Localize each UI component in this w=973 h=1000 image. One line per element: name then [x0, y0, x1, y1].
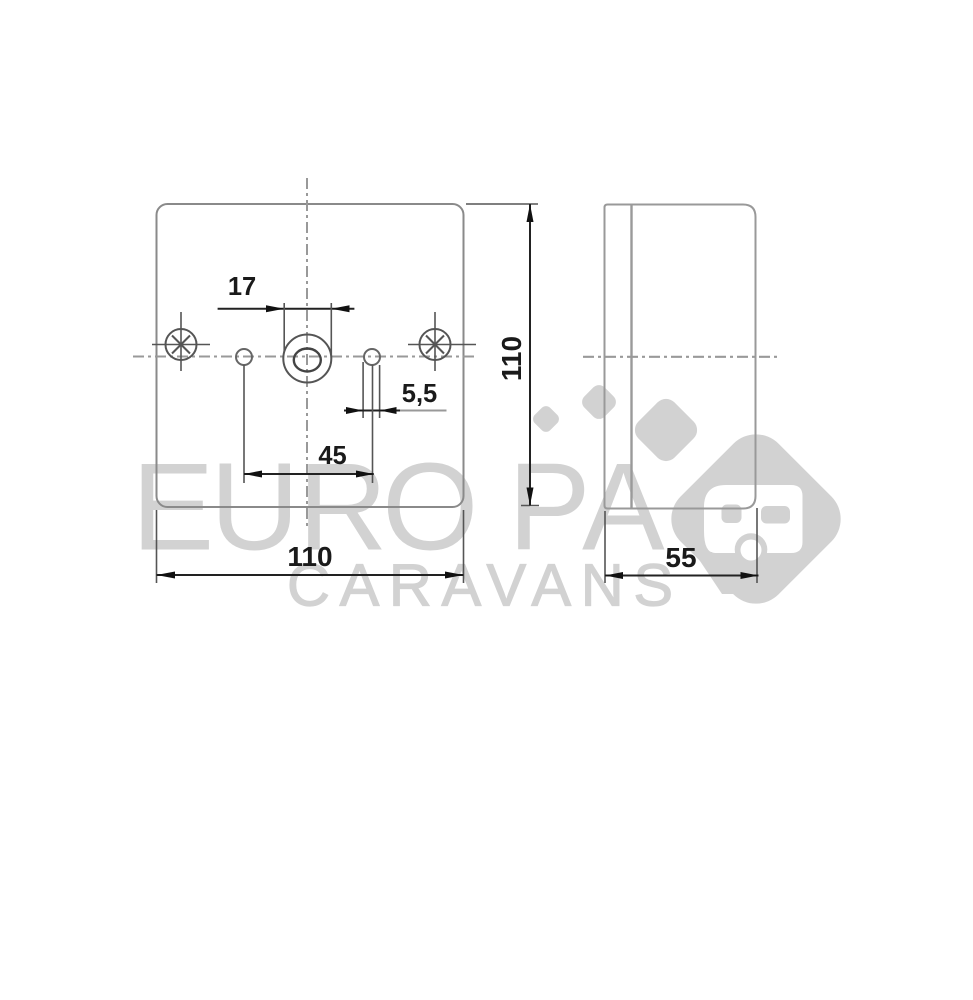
- svg-text:55: 55: [665, 542, 696, 573]
- svg-text:45: 45: [318, 442, 346, 470]
- svg-text:110: 110: [287, 541, 332, 572]
- svg-text:17: 17: [228, 273, 256, 301]
- svg-text:110: 110: [496, 336, 527, 381]
- svg-text:5,5: 5,5: [402, 380, 437, 408]
- svg-text:CARAVANS: CARAVANS: [287, 552, 673, 619]
